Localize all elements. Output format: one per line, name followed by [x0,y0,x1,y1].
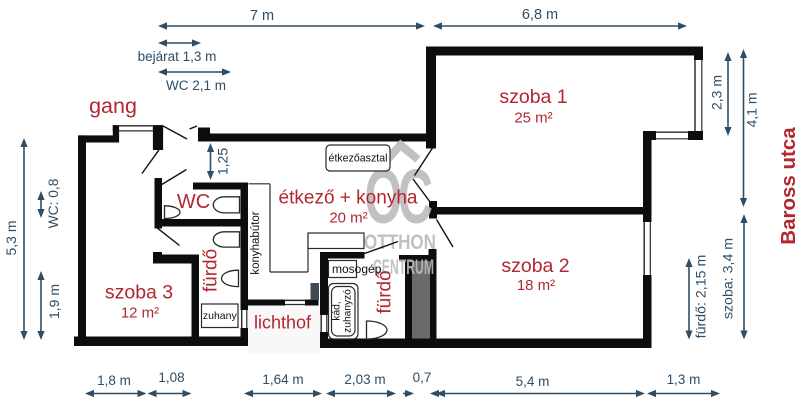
svg-text:1,25: 1,25 [215,148,231,175]
svg-text:WC 2,1 m: WC 2,1 m [166,78,226,93]
svg-text:1,64 m: 1,64 m [262,372,303,387]
svg-text:szoba 3: szoba 3 [105,282,173,304]
svg-text:Baross utca: Baross utca [777,127,800,245]
svg-text:szoba 1: szoba 1 [499,86,567,108]
svg-text:WC: 0,8: WC: 0,8 [46,178,61,228]
svg-text:lichthof: lichthof [254,313,312,333]
svg-text:kád,: kád, [332,301,343,320]
svg-text:fürdő: fürdő [201,249,222,292]
svg-text:5,3 m: 5,3 m [3,220,19,255]
svg-text:7 m: 7 m [250,8,274,24]
svg-text:20 m²: 20 m² [329,210,367,227]
svg-text:1,9 m: 1,9 m [46,284,62,319]
svg-text:4,1 m: 4,1 m [744,92,760,127]
svg-text:1,08: 1,08 [158,370,184,385]
svg-text:2,3 m: 2,3 m [709,75,725,110]
svg-text:bejárat 1,3 m: bejárat 1,3 m [138,49,217,64]
svg-text:2,03 m: 2,03 m [344,372,385,387]
svg-text:fürdő: 2,15 m: fürdő: 2,15 m [694,255,710,339]
svg-text:étkezőasztal: étkezőasztal [329,153,388,165]
svg-text:6,8 m: 6,8 m [522,7,558,23]
svg-text:1,8 m: 1,8 m [97,373,131,388]
svg-text:étkező + konyha: étkező + konyha [279,188,418,209]
svg-text:5,4 m: 5,4 m [516,374,550,389]
svg-text:szoba 2: szoba 2 [501,255,569,277]
svg-text:fürdő: fürdő [375,270,396,313]
svg-text:zuhany: zuhany [203,310,238,322]
svg-text:0,7: 0,7 [413,370,432,385]
svg-text:1,3 m: 1,3 m [667,372,701,387]
svg-text:konyhabútor: konyhabútor [250,211,262,274]
svg-text:zuhanyzó: zuhanyzó [343,289,354,333]
svg-text:gang: gang [89,94,137,118]
svg-text:25 m²: 25 m² [514,110,552,127]
svg-text:18 m²: 18 m² [517,277,555,294]
svg-text:12 m²: 12 m² [121,305,159,322]
svg-text:szoba: 3,4 m: szoba: 3,4 m [721,238,737,319]
svg-text:WC: WC [177,191,210,213]
